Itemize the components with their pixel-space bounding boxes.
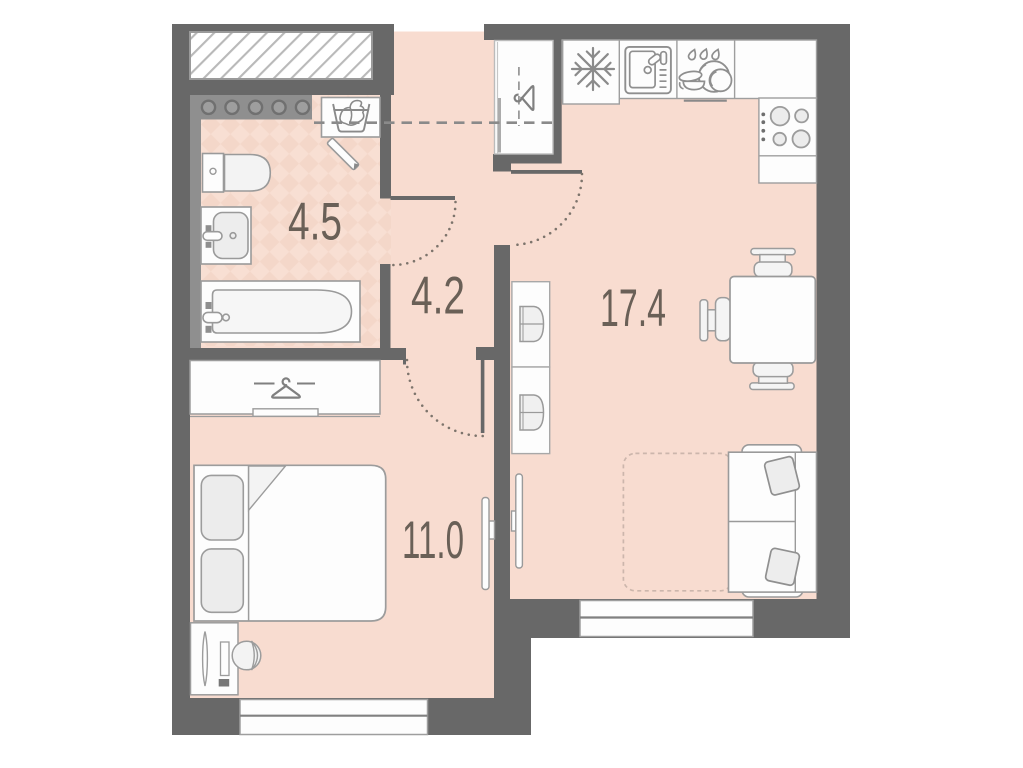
svg-text:11.0: 11.0	[402, 511, 464, 570]
svg-text:17.4: 17.4	[600, 279, 666, 338]
svg-text:4.2: 4.2	[411, 266, 465, 325]
svg-text:4.5: 4.5	[288, 192, 342, 251]
